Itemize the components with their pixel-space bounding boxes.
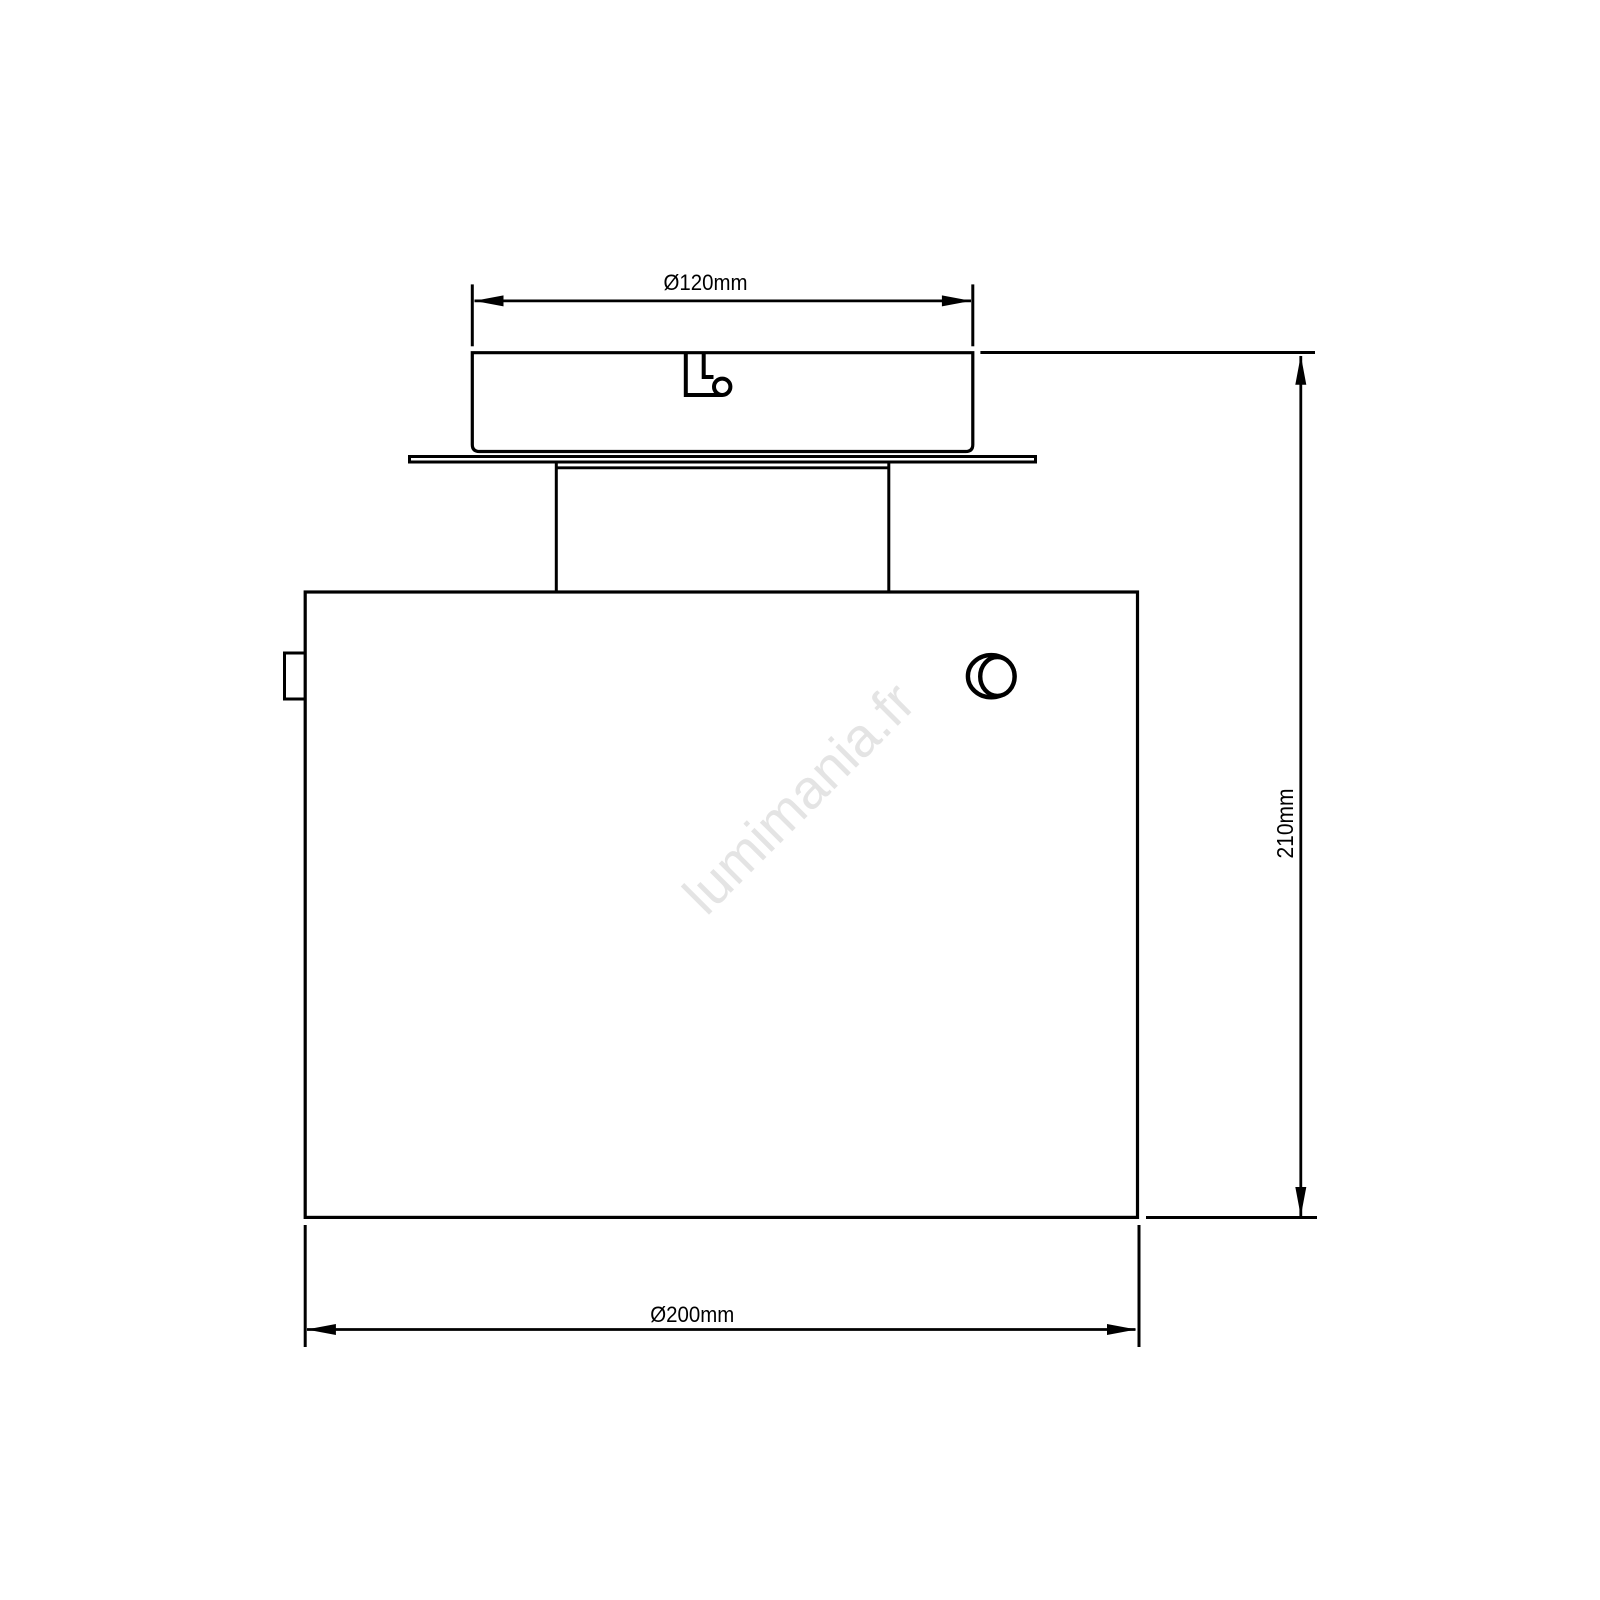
svg-text:210mm: 210mm	[1272, 789, 1298, 859]
svg-text:Ø200mm: Ø200mm	[650, 1302, 734, 1327]
svg-text:Ø120mm: Ø120mm	[664, 270, 748, 295]
